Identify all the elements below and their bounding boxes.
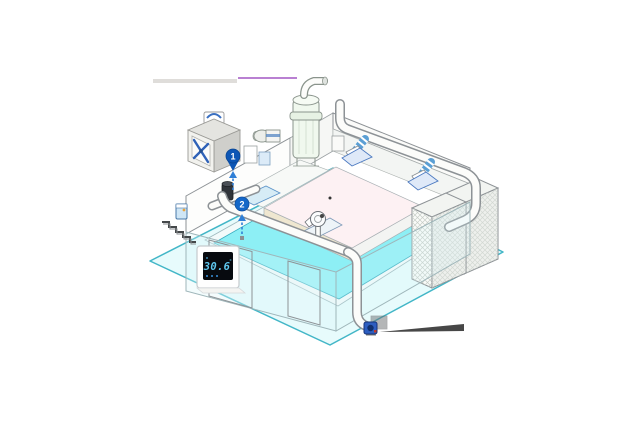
- door-frame-2: [288, 261, 320, 325]
- plant-cabinet-small: [244, 146, 257, 163]
- plant-box-right: [332, 136, 344, 151]
- platform-drain-dot: [329, 197, 332, 200]
- thermostat-reading: 30.6: [203, 261, 231, 273]
- wall-thermostat: 30.6 °: [197, 246, 245, 293]
- thermostat-degree-mark: °: [229, 259, 232, 265]
- leader-line-gray: [153, 79, 237, 83]
- plant-cabinet-blue: [259, 152, 270, 165]
- marker-2-label: 2: [239, 200, 244, 210]
- marker-1-label: 1: [230, 152, 235, 162]
- duct-outlet-fan: [364, 322, 377, 335]
- illustration-canvas: 30.6 ° 1 2: [0, 0, 640, 425]
- thermostat-ledge: [197, 288, 245, 293]
- isometric-scene: 30.6 ° 1 2: [0, 0, 640, 425]
- wall-control-box: [176, 204, 187, 219]
- leader-lines: [153, 78, 297, 83]
- leader-wedge-dark: [380, 324, 464, 332]
- circulation-pump: [253, 130, 280, 142]
